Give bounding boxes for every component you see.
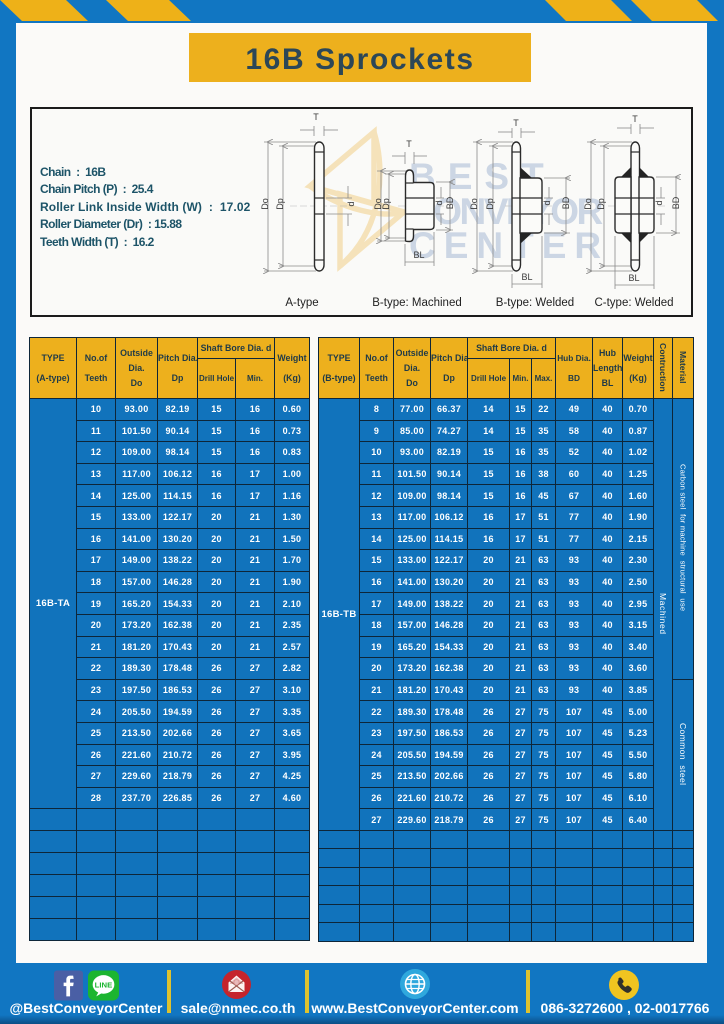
svg-text:d: d [346, 201, 356, 206]
svg-text:BD: BD [445, 196, 455, 209]
svg-text:Dp: Dp [485, 198, 495, 210]
svg-text:BL: BL [521, 272, 532, 282]
svg-text:LINE: LINE [95, 981, 113, 990]
svg-text:BL: BL [413, 250, 424, 260]
svg-text:T: T [406, 139, 412, 149]
svg-text:T: T [632, 114, 638, 124]
svg-text:Dp: Dp [275, 198, 285, 210]
svg-text:A-type: A-type [285, 297, 318, 309]
svg-text:BD: BD [671, 196, 681, 209]
svg-text:BD: BD [561, 196, 571, 209]
svg-text:Do: Do [260, 198, 270, 210]
svg-text:B-type: Machined: B-type: Machined [372, 297, 462, 309]
svg-text:C-type: Welded: C-type: Welded [594, 297, 673, 309]
svg-text:T: T [313, 112, 319, 122]
svg-text:T: T [513, 118, 519, 128]
svg-text:Do: Do [583, 198, 593, 210]
svg-text:Do: Do [469, 198, 479, 210]
svg-text:Dp: Dp [596, 198, 606, 210]
svg-text:d: d [542, 200, 552, 205]
svg-text:Dp: Dp [381, 198, 391, 210]
svg-text:BL: BL [628, 273, 639, 283]
svg-text:B-type: Welded: B-type: Welded [496, 297, 574, 309]
svg-text:d: d [434, 200, 444, 205]
svg-text:d: d [654, 200, 664, 205]
